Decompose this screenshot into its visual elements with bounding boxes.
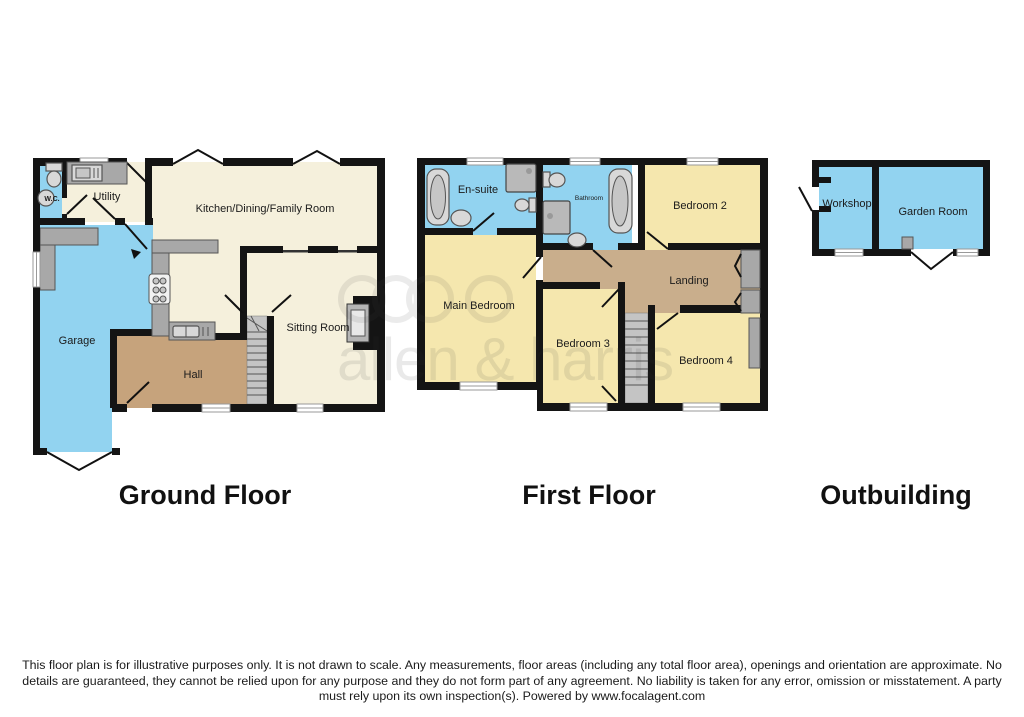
outbuilding-plan: Workshop Garden Room bbox=[799, 160, 990, 269]
floorplan-page: W.C. Utility Kitchen/Dining/Family Room … bbox=[0, 0, 1024, 717]
ensuite-sink-icon bbox=[451, 210, 471, 226]
bathroom-sink-icon bbox=[568, 233, 586, 247]
room-label-workshop: Workshop bbox=[822, 198, 871, 210]
room-label-wc: W.C. bbox=[44, 196, 59, 203]
room-label-garage: Garage bbox=[59, 335, 96, 347]
ensuite-shower-icon bbox=[506, 164, 536, 192]
french-door bbox=[173, 150, 223, 164]
room-label-bedroom2: Bedroom 2 bbox=[673, 200, 727, 212]
room-label-ensuite: En-suite bbox=[458, 184, 498, 196]
room-label-utility: Utility bbox=[94, 191, 121, 203]
garden-room-stove bbox=[902, 237, 913, 249]
disclaimer-text: This floor plan is for illustrative purp… bbox=[12, 658, 1012, 705]
room-label-landing: Landing bbox=[669, 275, 708, 287]
bedroom4-wardrobe bbox=[749, 318, 760, 368]
first-floor-title: First Floor bbox=[522, 480, 656, 511]
room-label-kitchen: Kitchen/Dining/Family Room bbox=[196, 203, 335, 215]
room-label-hall: Hall bbox=[184, 369, 203, 381]
bathroom-shower-icon bbox=[543, 201, 570, 234]
room-label-garden-room: Garden Room bbox=[898, 206, 967, 218]
garage-bench bbox=[40, 228, 98, 245]
room-label-bedroom4: Bedroom 4 bbox=[679, 355, 733, 367]
watermark-text: allen & harris bbox=[337, 326, 673, 393]
floorplan-drawing: W.C. Utility Kitchen/Dining/Family Room … bbox=[0, 0, 1024, 717]
landing-wardrobe bbox=[741, 250, 760, 288]
ground-floor-plan: W.C. Utility Kitchen/Dining/Family Room … bbox=[33, 150, 385, 470]
wc-toilet-icon bbox=[46, 163, 62, 171]
ensuite-toilet-icon bbox=[529, 198, 536, 212]
garage-door bbox=[47, 452, 112, 470]
ground-floor-title: Ground Floor bbox=[119, 480, 291, 511]
room-label-bathroom: Bathroom bbox=[575, 195, 603, 202]
outbuilding-title: Outbuilding bbox=[820, 480, 971, 511]
garden-room-door bbox=[911, 252, 953, 269]
hob-icon bbox=[149, 274, 170, 304]
workshop-door bbox=[799, 187, 812, 211]
landing-wardrobe bbox=[741, 290, 760, 313]
kitchen-counter bbox=[152, 240, 218, 253]
